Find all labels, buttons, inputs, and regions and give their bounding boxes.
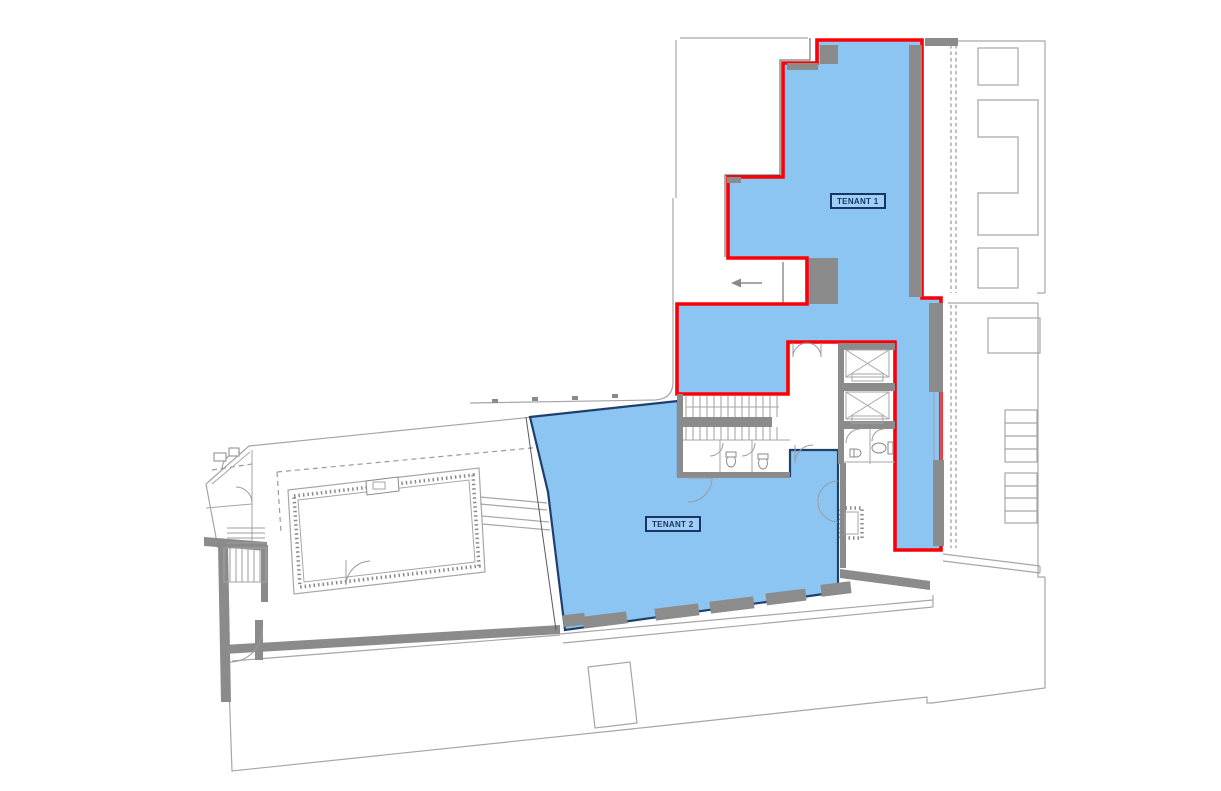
entry-arrow-icon [731, 279, 762, 288]
elevator-2 [846, 392, 889, 423]
yard-opening [588, 662, 637, 728]
double-door-arc [793, 343, 821, 357]
terrace-bay [978, 100, 1038, 235]
floor-plan-drawing [0, 0, 1221, 791]
wall [261, 545, 268, 602]
terrace-bay [978, 48, 1018, 85]
tenant1-label: TENANT 1 [830, 193, 886, 209]
louver-panels [1005, 410, 1037, 523]
wc-room [838, 429, 895, 464]
room-notch [366, 477, 399, 495]
core-toilets [683, 440, 790, 472]
entry [731, 262, 783, 303]
floor-plan-canvas: TENANT 1 TENANT 2 [0, 0, 1221, 791]
tenant2-label: TENANT 2 [645, 516, 701, 532]
demise-offset-dashes [951, 45, 956, 548]
wall [255, 620, 263, 660]
annex-stair [224, 528, 266, 582]
big-room [288, 468, 485, 594]
annex-corner-rooms [206, 448, 252, 545]
elevator-shafts [838, 343, 895, 429]
main-staircase [683, 396, 779, 440]
terrace-bay [978, 248, 1018, 288]
elevator-1 [846, 350, 889, 381]
